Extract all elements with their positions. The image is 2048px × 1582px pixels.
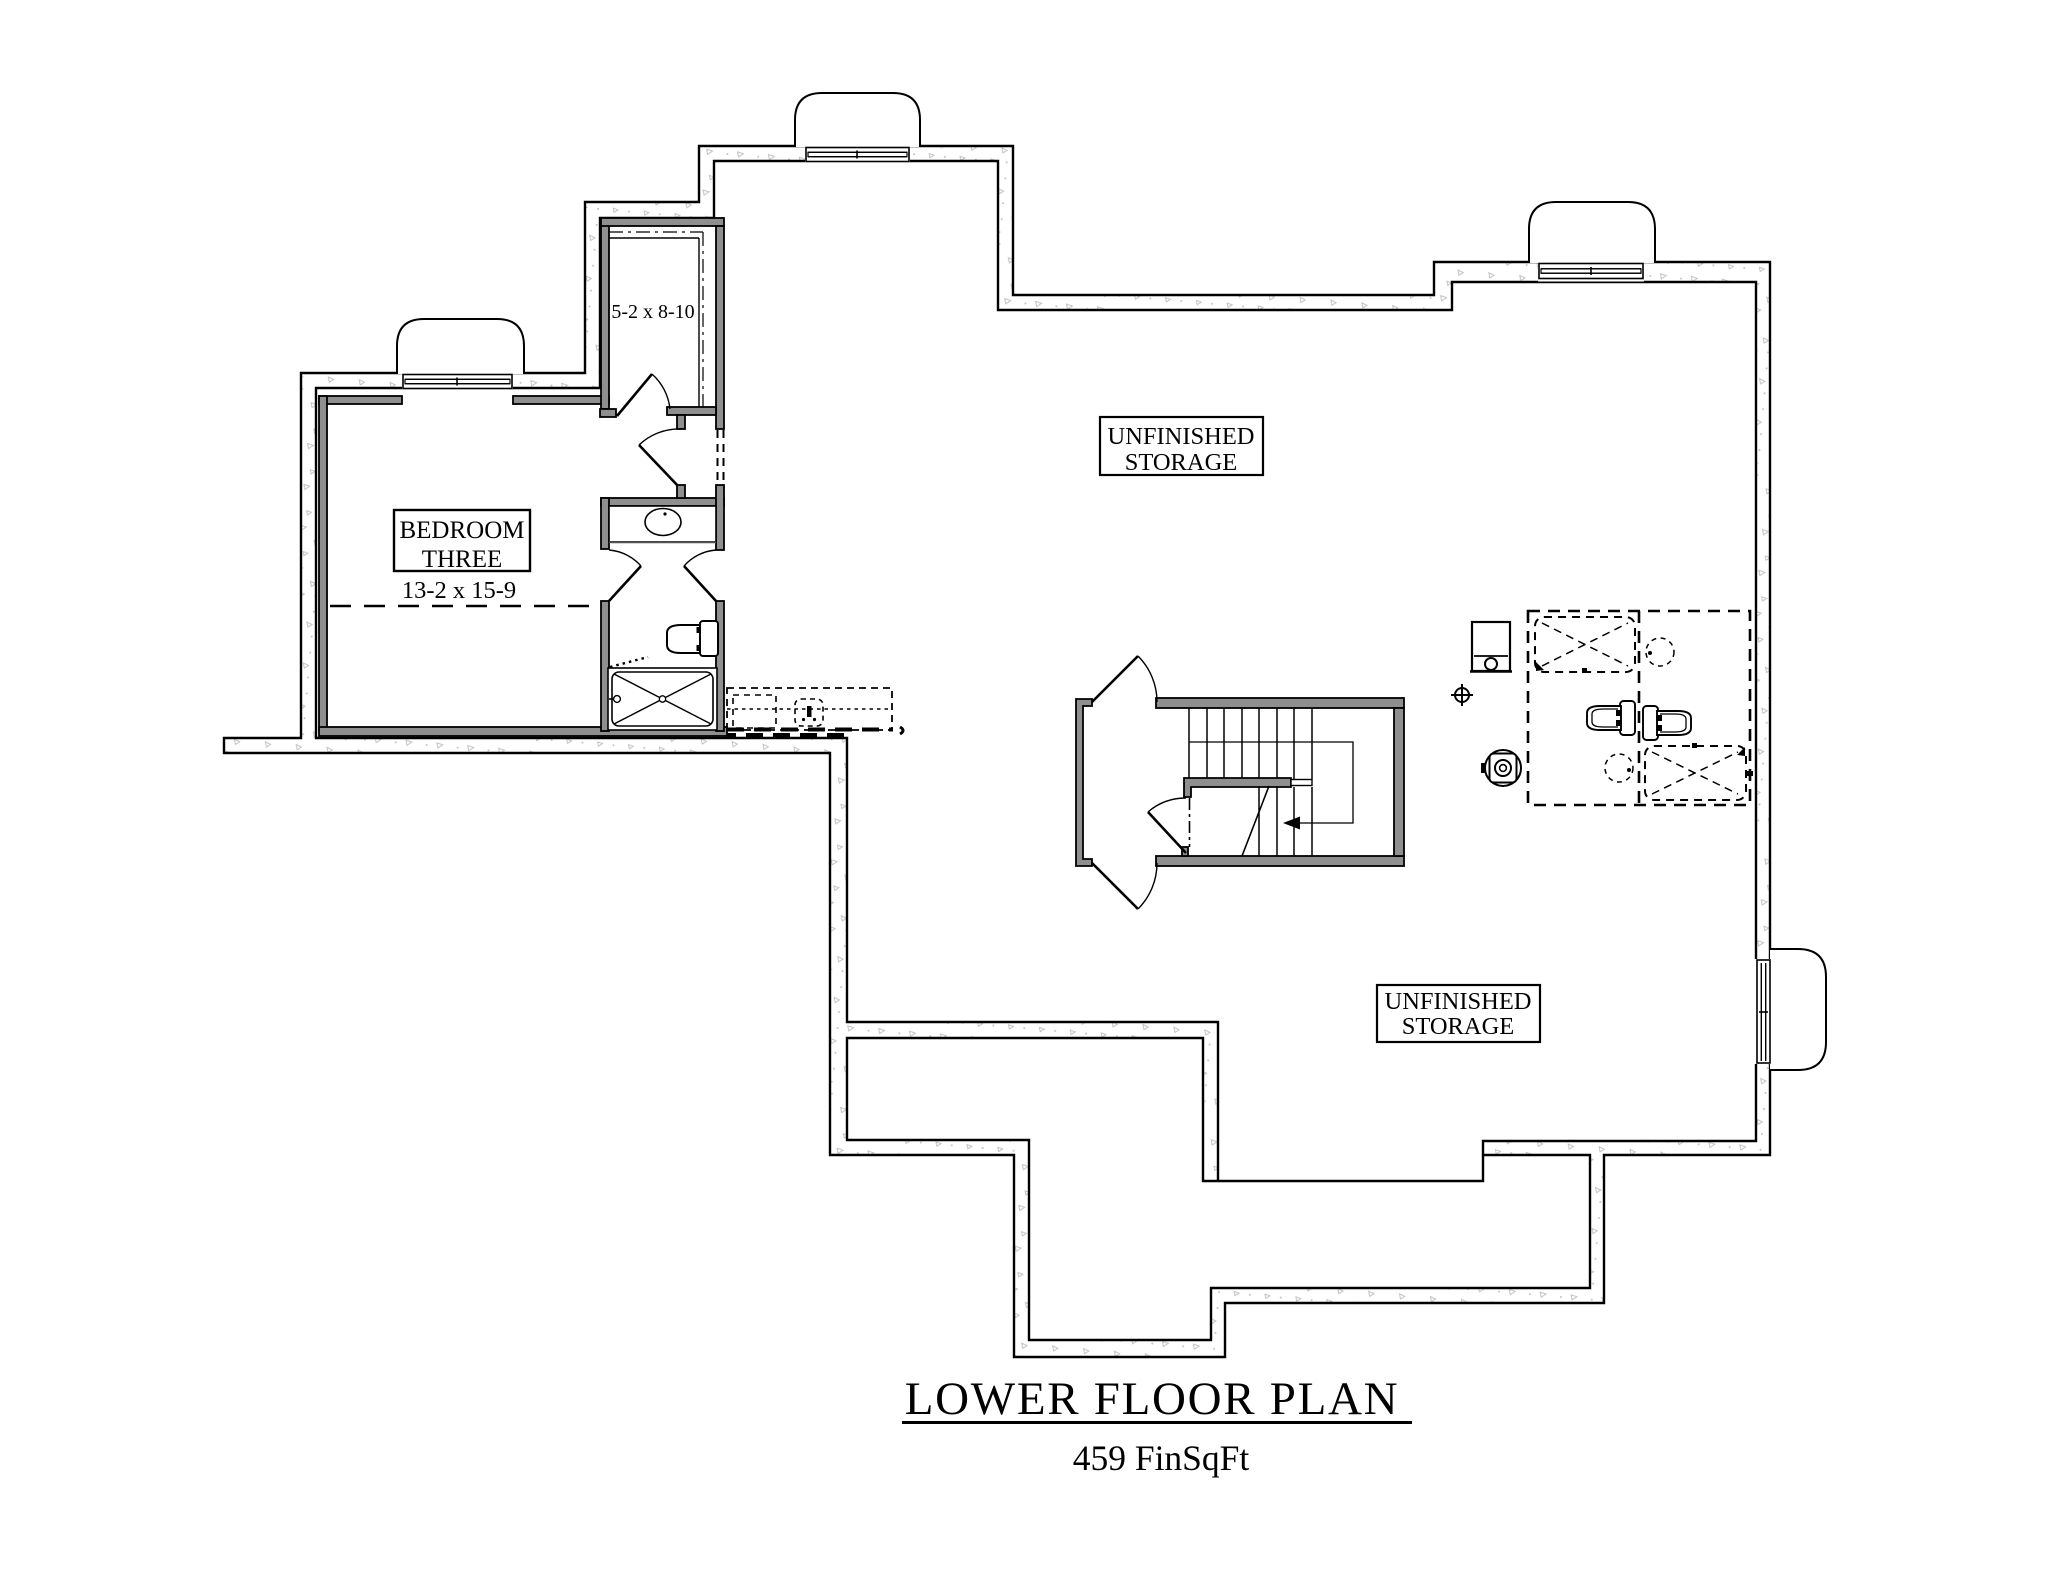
svg-text:BEDROOM: BEDROOM [399, 517, 524, 544]
svg-text:459 FinSqFt: 459 FinSqFt [1073, 1438, 1250, 1478]
svg-text:5-2 x 8-10: 5-2 x 8-10 [611, 301, 694, 323]
svg-text:THREE: THREE [422, 546, 503, 573]
svg-text:STORAGE: STORAGE [1402, 1013, 1515, 1040]
svg-text:UNFINISHED: UNFINISHED [1385, 988, 1532, 1015]
svg-text:UNFINISHED: UNFINISHED [1108, 423, 1255, 450]
svg-text:13-2 x 15-9: 13-2 x 15-9 [402, 577, 516, 604]
svg-text:LOWER FLOOR PLAN: LOWER FLOOR PLAN [905, 1373, 1400, 1425]
svg-text:STORAGE: STORAGE [1125, 449, 1238, 476]
